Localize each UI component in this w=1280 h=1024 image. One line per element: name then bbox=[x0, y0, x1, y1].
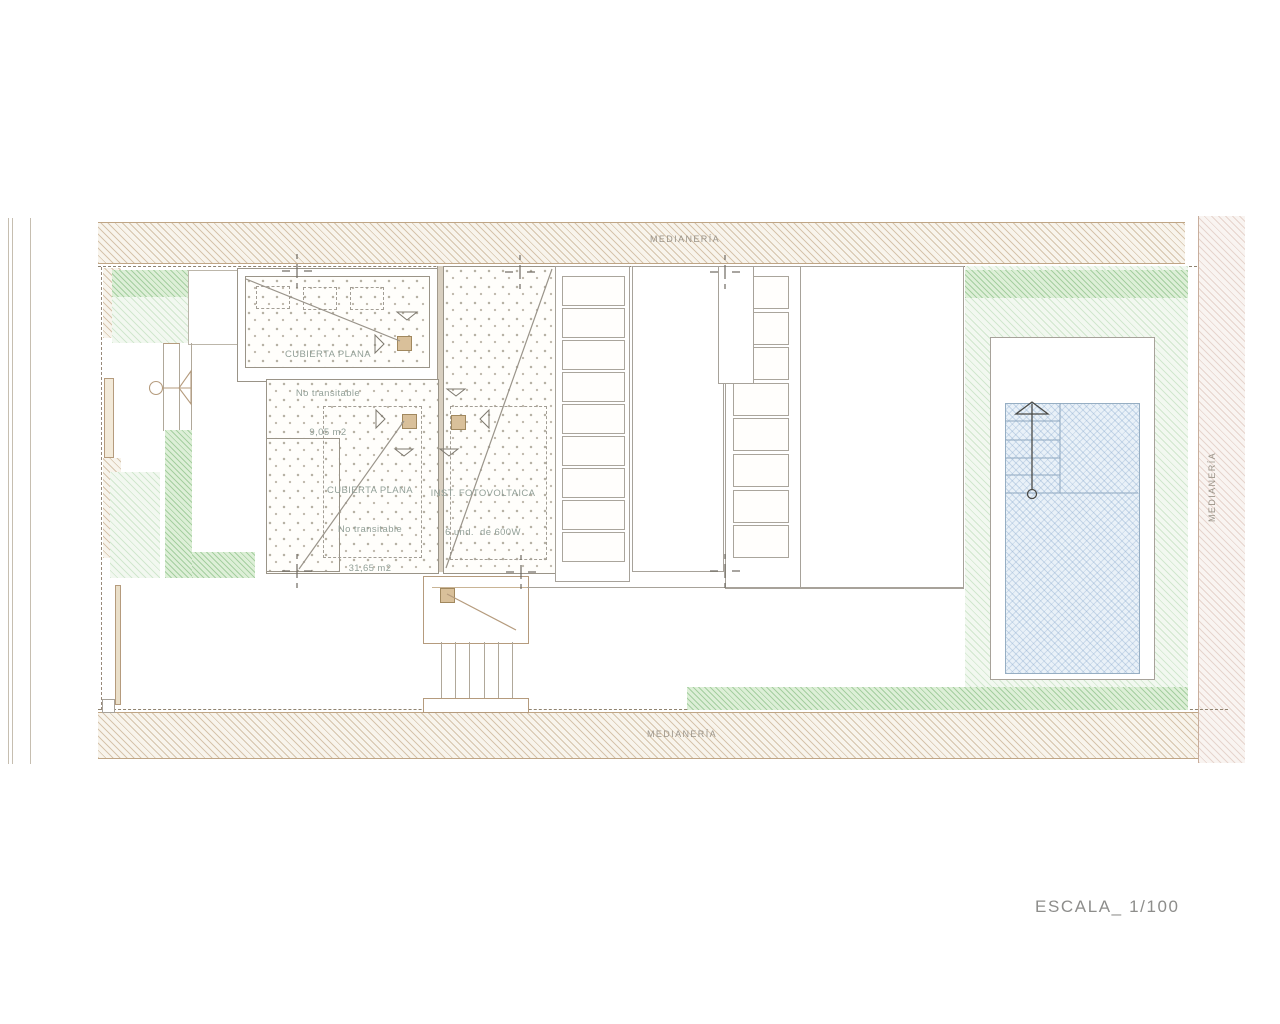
garden-strip-horizontal bbox=[192, 552, 255, 578]
entrance-step bbox=[423, 698, 529, 713]
stair-tread-line bbox=[441, 642, 442, 698]
stair-tread-line bbox=[469, 642, 470, 698]
hvac-unit-icon bbox=[397, 336, 412, 351]
pergola-slat bbox=[733, 383, 789, 416]
annotation-line: CUBIERTA PLANA bbox=[268, 348, 388, 361]
garden-south-strip bbox=[687, 687, 1188, 710]
rear-garden-top-strip bbox=[965, 270, 1188, 298]
pergola-slat bbox=[562, 404, 625, 434]
stair-tread-line bbox=[512, 642, 513, 698]
party-wall-bottom-label: MEDIANERÍA bbox=[622, 729, 742, 739]
stair-tread-line bbox=[498, 642, 499, 698]
side-yard-slab bbox=[188, 270, 239, 345]
plot-boundary-left bbox=[101, 267, 102, 710]
left-wall-line bbox=[115, 585, 121, 705]
pergola-slat bbox=[733, 490, 789, 523]
pergola-slat bbox=[562, 340, 625, 370]
street-edge-line bbox=[12, 218, 13, 764]
annotation-line: No transitable bbox=[310, 523, 430, 536]
roof-large-annotation: CUBIERTA PLANA No transitable 31,65 m2 bbox=[310, 458, 430, 601]
stair-tread-line bbox=[455, 642, 456, 698]
plan-canvas: MEDIANERÍA MEDIANERÍA MEDIANERÍA CUBIERT… bbox=[0, 0, 1280, 1024]
building-south-edge bbox=[527, 587, 963, 588]
roof-plane-east bbox=[800, 266, 964, 589]
pergola-slat bbox=[562, 500, 625, 530]
entry-corridor bbox=[163, 343, 180, 431]
garden-patch-nw bbox=[112, 270, 188, 297]
hvac-unit-icon bbox=[402, 414, 417, 429]
garden-patch-nw-light bbox=[112, 297, 188, 343]
annotation-line: 6 und. de 600W bbox=[423, 526, 543, 539]
left-corner-post bbox=[102, 699, 115, 713]
corridor-wall bbox=[191, 343, 192, 430]
pergola-slat bbox=[562, 532, 625, 562]
roof-small-annotation: CUBIERTA PLANA No transitable 9,05 m2 bbox=[268, 322, 388, 465]
pergola-slat bbox=[562, 468, 625, 498]
skylight-box bbox=[303, 287, 337, 310]
roof-plane-center bbox=[632, 266, 724, 572]
pergola-slat bbox=[562, 436, 625, 466]
garden-strip-vertical bbox=[165, 430, 192, 578]
pergola-slat bbox=[562, 276, 625, 306]
pergola-slat bbox=[733, 525, 789, 558]
left-wall-niche bbox=[104, 378, 114, 458]
pool bbox=[1005, 403, 1140, 674]
scale-label: ESCALA_ 1/100 bbox=[1035, 897, 1180, 917]
pergola-slat bbox=[733, 418, 789, 451]
street-edge-line bbox=[8, 218, 9, 764]
hvac-unit-icon bbox=[451, 415, 466, 430]
party-wall-top-label: MEDIANERÍA bbox=[625, 234, 745, 244]
pergola-slat bbox=[562, 372, 625, 402]
pergola-slat bbox=[733, 454, 789, 487]
stair-tread-line bbox=[484, 642, 485, 698]
street-edge-line bbox=[30, 218, 31, 764]
hvac-unit-icon bbox=[440, 588, 455, 603]
annotation-line: CUBIERTA PLANA bbox=[310, 484, 430, 497]
skylight-box bbox=[350, 287, 384, 310]
lawn-patch-sw bbox=[110, 472, 160, 578]
stair-tower bbox=[718, 266, 754, 384]
photovoltaic-annotation: INST. FOTOVOLTAICA 6 und. de 600W bbox=[423, 461, 543, 565]
annotation-line: 31,65 m2 bbox=[310, 562, 430, 575]
pergola-slat bbox=[562, 308, 625, 338]
annotation-line: INST. FOTOVOLTAICA bbox=[423, 487, 543, 500]
skylight-box bbox=[256, 286, 290, 309]
annotation-line: 9,05 m2 bbox=[268, 426, 388, 439]
annotation-line: No transitable bbox=[268, 387, 388, 400]
party-wall-right-label: MEDIANERÍA bbox=[1207, 432, 1229, 542]
